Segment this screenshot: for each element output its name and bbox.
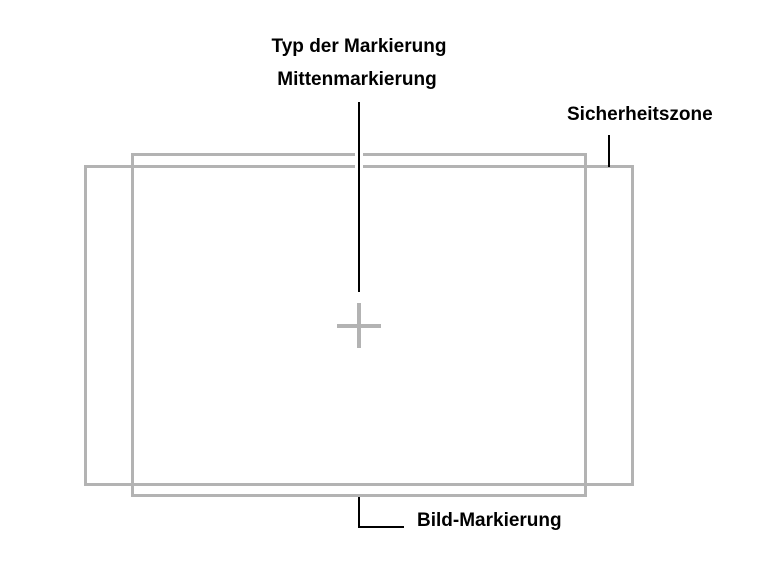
cross-vertical-bar xyxy=(357,303,361,348)
center-marker-leader-ink xyxy=(358,102,360,292)
center-marker-label: Mittenmarkierung xyxy=(277,69,436,91)
image-marker-leader-line xyxy=(358,497,404,528)
safe-zone-label: Sicherheitszone xyxy=(567,104,713,126)
image-marker-label: Bild-Markierung xyxy=(417,510,562,532)
marker-type-heading: Typ der Markierung xyxy=(272,36,447,58)
safe-zone-leader-line xyxy=(608,135,610,167)
diagram-canvas: Typ der Markierung Mittenmarkierung Sich… xyxy=(0,0,767,579)
center-marker-leader-line xyxy=(355,102,363,292)
